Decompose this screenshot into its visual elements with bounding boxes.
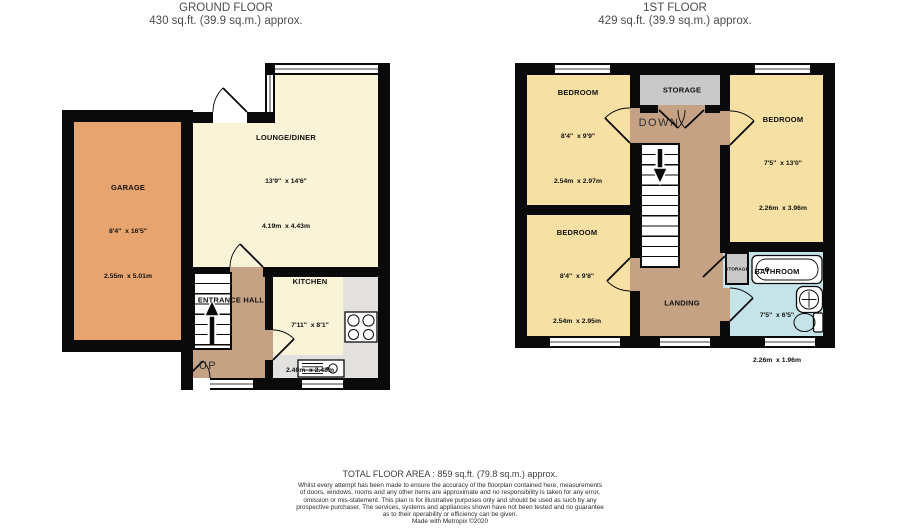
bedroom-bottom-left-label: BEDROOM 8'4" x 9'8" 2.54m x 2.95m [553,192,601,362]
first-floor-area: 429 sq.ft. (39.9 sq.m.) approx. [515,15,835,28]
down-label: DOWN [639,117,680,129]
door-leaf-storage-small [703,256,725,277]
entrance-hall-label: ENTRANCE HALL [198,260,264,341]
kitchen-label: KITCHEN 7'11" x 8'1" 2.40m x 2.48m [286,241,334,411]
garage-label: GARAGE 8'4" x 16'5" 2.55m x 5.01m [104,147,152,317]
disclaimer-line: prospective purchaser. The services, sys… [0,504,900,511]
footer: TOTAL FLOOR AREA : 859 sq.ft. (79.8 sq.m… [0,469,900,526]
first-floor-header: 1ST FLOOR 429 sq.ft. (39.9 sq.m.) approx… [515,2,835,28]
ground-floor-header: GROUND FLOOR 430 sq.ft. (39.9 sq.m.) app… [62,2,390,28]
hob-icon [345,312,377,342]
ground-floor-area: 430 sq.ft. (39.9 sq.m.) approx. [62,15,390,28]
down-arrow-icon [653,149,668,184]
landing-label: LANDING [664,263,700,344]
ground-floor-plan: GARAGE 8'4" x 16'5" 2.55m x 5.01m LOUNGE… [62,60,390,390]
bathroom-label: BATHROOM 7'5" x 6'5" 2.26m x 1.96m [753,231,801,401]
bedroom-top-right-label: BEDROOM 7'5" x 13'0" 2.26m x 3.96m [759,79,807,249]
credit-line: Made with Metropix ©2020 [0,518,900,525]
disclaimer-line: of doors, windows, rooms and any other i… [0,489,900,496]
door-arc-lounge-entry [213,88,247,112]
storage-small-label: STORAGE [725,244,749,294]
door-arc-bedroom-bottom-left [607,258,630,291]
first-floor-plan: BEDROOM 8'4" x 9'9" 2.54m x 2.97m BEDROO… [515,63,835,348]
disclaimer-line: omission or mis-statement. This plan is … [0,497,900,504]
door-arc-bedroom-top-left [605,108,630,143]
up-label: UP [199,360,217,372]
door-arc-bedroom-top-right [730,111,754,145]
first-floor-title: 1ST FLOOR [515,2,835,15]
ground-floor-title: GROUND FLOOR [62,2,390,15]
total-floor-area: TOTAL FLOOR AREA : 859 sq.ft. (79.8 sq.m… [0,469,900,479]
disclaimer-line: Whilst every attempt has been made to en… [0,482,900,489]
